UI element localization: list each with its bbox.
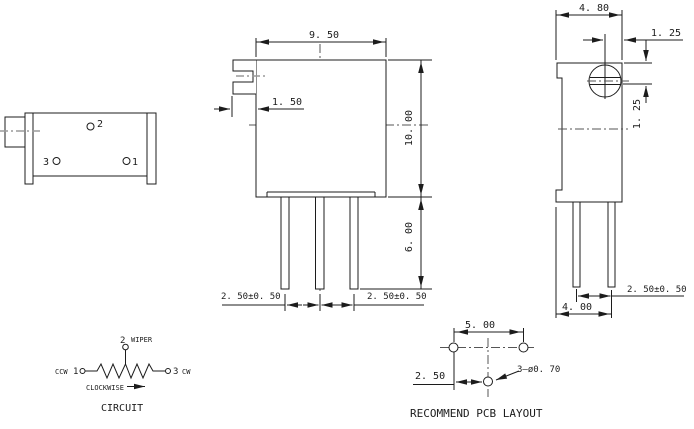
pin-right: [608, 202, 615, 287]
ccw-label: CCW: [55, 368, 68, 376]
terminal-2-hole: [87, 123, 94, 130]
hole-callout-leader: [496, 371, 519, 380]
end-cap-lines: [33, 113, 147, 176]
pcb-layout: 5. 00 2. 50 3—ø0. 70 RECOMMEND PCB LAYOU…: [410, 320, 560, 420]
left-side-view: 2 3 1: [0, 113, 156, 184]
depth-dim-text: 4. 80: [579, 3, 609, 14]
pin-left: [573, 202, 580, 287]
cw-label: CW: [182, 368, 191, 376]
front-view: 9. 50 1. 50 10. 00 6. 00 2. 50±0. 50 2. …: [214, 30, 432, 311]
depth-dim-lines: [556, 10, 622, 60]
height-dim-text: 10. 00: [404, 110, 415, 146]
hole-callout-text: 3—ø0. 70: [517, 365, 560, 375]
pin-length-text: 6. 00: [404, 222, 415, 252]
circuit-caption: CIRCUIT: [101, 403, 143, 414]
wiper-terminal: [123, 344, 129, 350]
pcb-caption: RECOMMEND PCB LAYOUT: [410, 407, 543, 420]
clockwise-label: CLOCKWISE: [86, 384, 124, 392]
trimmer-potentiometer-drawing: 2 3 1 9. 50 1. 50 10. 00 6. 00: [0, 0, 694, 429]
circuit-schematic: 2 WIPER CCW 1 3 CW CLOCKWISE CIRCUIT: [55, 336, 191, 414]
screw-x-text: 1. 25: [651, 28, 681, 39]
terminal-1-label: 1: [132, 157, 138, 168]
pin-center: [316, 197, 325, 289]
hole-1: [449, 343, 458, 352]
adjust-shaft-outline: [5, 117, 25, 147]
pin1-terminal: [80, 369, 85, 374]
pcb-pitch-text: 5. 00: [465, 320, 495, 331]
body-outline: [256, 60, 386, 197]
pin3-number: 3: [173, 367, 178, 377]
pcb-offset-text: 2. 50: [415, 371, 445, 382]
resistor-zigzag: [85, 364, 165, 378]
pin3-terminal: [166, 369, 171, 374]
terminal-3-hole: [53, 158, 60, 165]
pitch-right-text: 2. 50±0. 50: [367, 292, 427, 302]
screw-y-text: 1. 25: [632, 99, 643, 129]
hole-2: [484, 377, 493, 386]
right-side-view: 4. 80 1. 25 1. 25 2. 50±0. 50 4. 00: [556, 3, 687, 318]
width-dim-text: 9. 50: [309, 30, 339, 41]
terminal-2-label: 2: [97, 119, 103, 130]
pin-right: [350, 197, 358, 289]
wiper-label: WIPER: [131, 336, 153, 344]
terminal-3-label: 3: [43, 157, 49, 168]
screw-y-dim-lines: [623, 40, 652, 84]
screw-slot-tab: [233, 60, 256, 94]
terminal-1-hole: [123, 158, 130, 165]
hole-3: [519, 343, 528, 352]
pin-left: [281, 197, 289, 289]
technical-drawing-page: 2 3 1 9. 50 1. 50 10. 00 6. 00: [0, 0, 694, 429]
rv-pitch-text: 2. 50±0. 50: [627, 285, 687, 295]
span-dim-text: 4. 00: [562, 302, 592, 313]
pitch-left-text: 2. 50±0. 50: [221, 292, 281, 302]
screw-offset-text: 1. 50: [272, 97, 302, 108]
pin1-number: 1: [73, 367, 78, 377]
